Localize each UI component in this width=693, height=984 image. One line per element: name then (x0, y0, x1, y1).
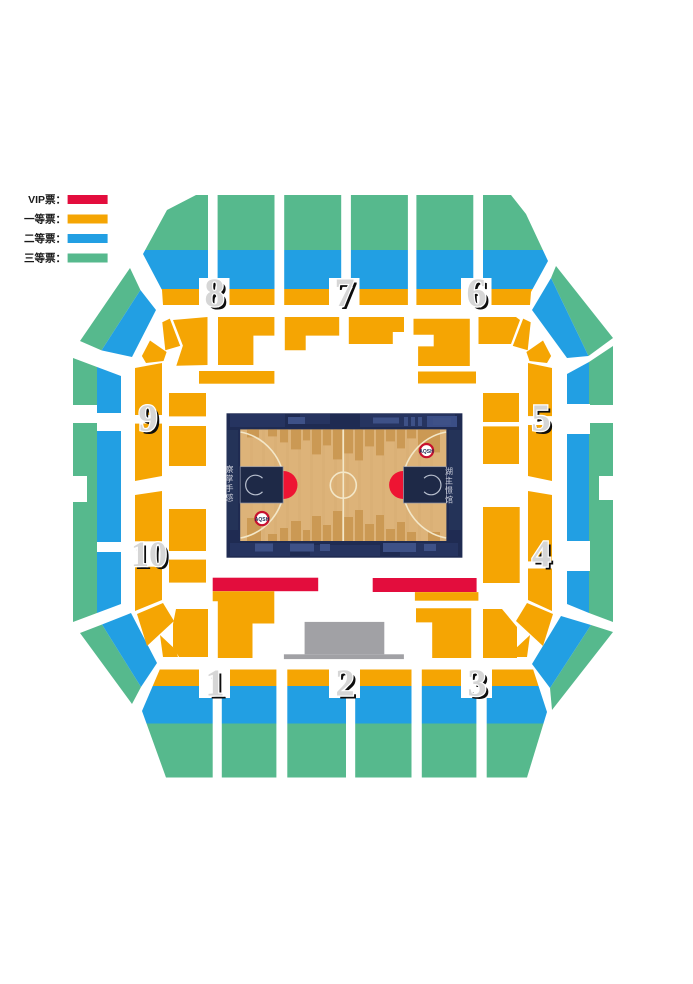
svg-text:5: 5 (532, 398, 551, 440)
svg-text:10: 10 (131, 534, 167, 574)
svg-text:7: 7 (335, 270, 355, 315)
svg-text:察掌手感: 察掌手感 (225, 464, 234, 503)
svg-text:8: 8 (205, 270, 225, 315)
svg-text:6: 6 (467, 270, 487, 315)
svg-text:9: 9 (139, 398, 158, 440)
svg-text:VIP票：: VIP票： (28, 194, 66, 206)
svg-text:1: 1 (206, 663, 225, 705)
svg-text:AQSH: AQSH (419, 449, 434, 455)
svg-text:湖主憬馆: 湖主憬馆 (445, 467, 454, 505)
svg-text:3: 3 (468, 663, 487, 705)
svg-text:2: 2 (336, 663, 355, 705)
svg-text:一等票：: 一等票： (24, 213, 66, 226)
svg-text:二等票：: 二等票： (24, 232, 66, 245)
svg-text:三等票：: 三等票： (24, 252, 66, 265)
svg-text:4: 4 (532, 534, 551, 576)
svg-text:AQSH: AQSH (255, 517, 270, 523)
